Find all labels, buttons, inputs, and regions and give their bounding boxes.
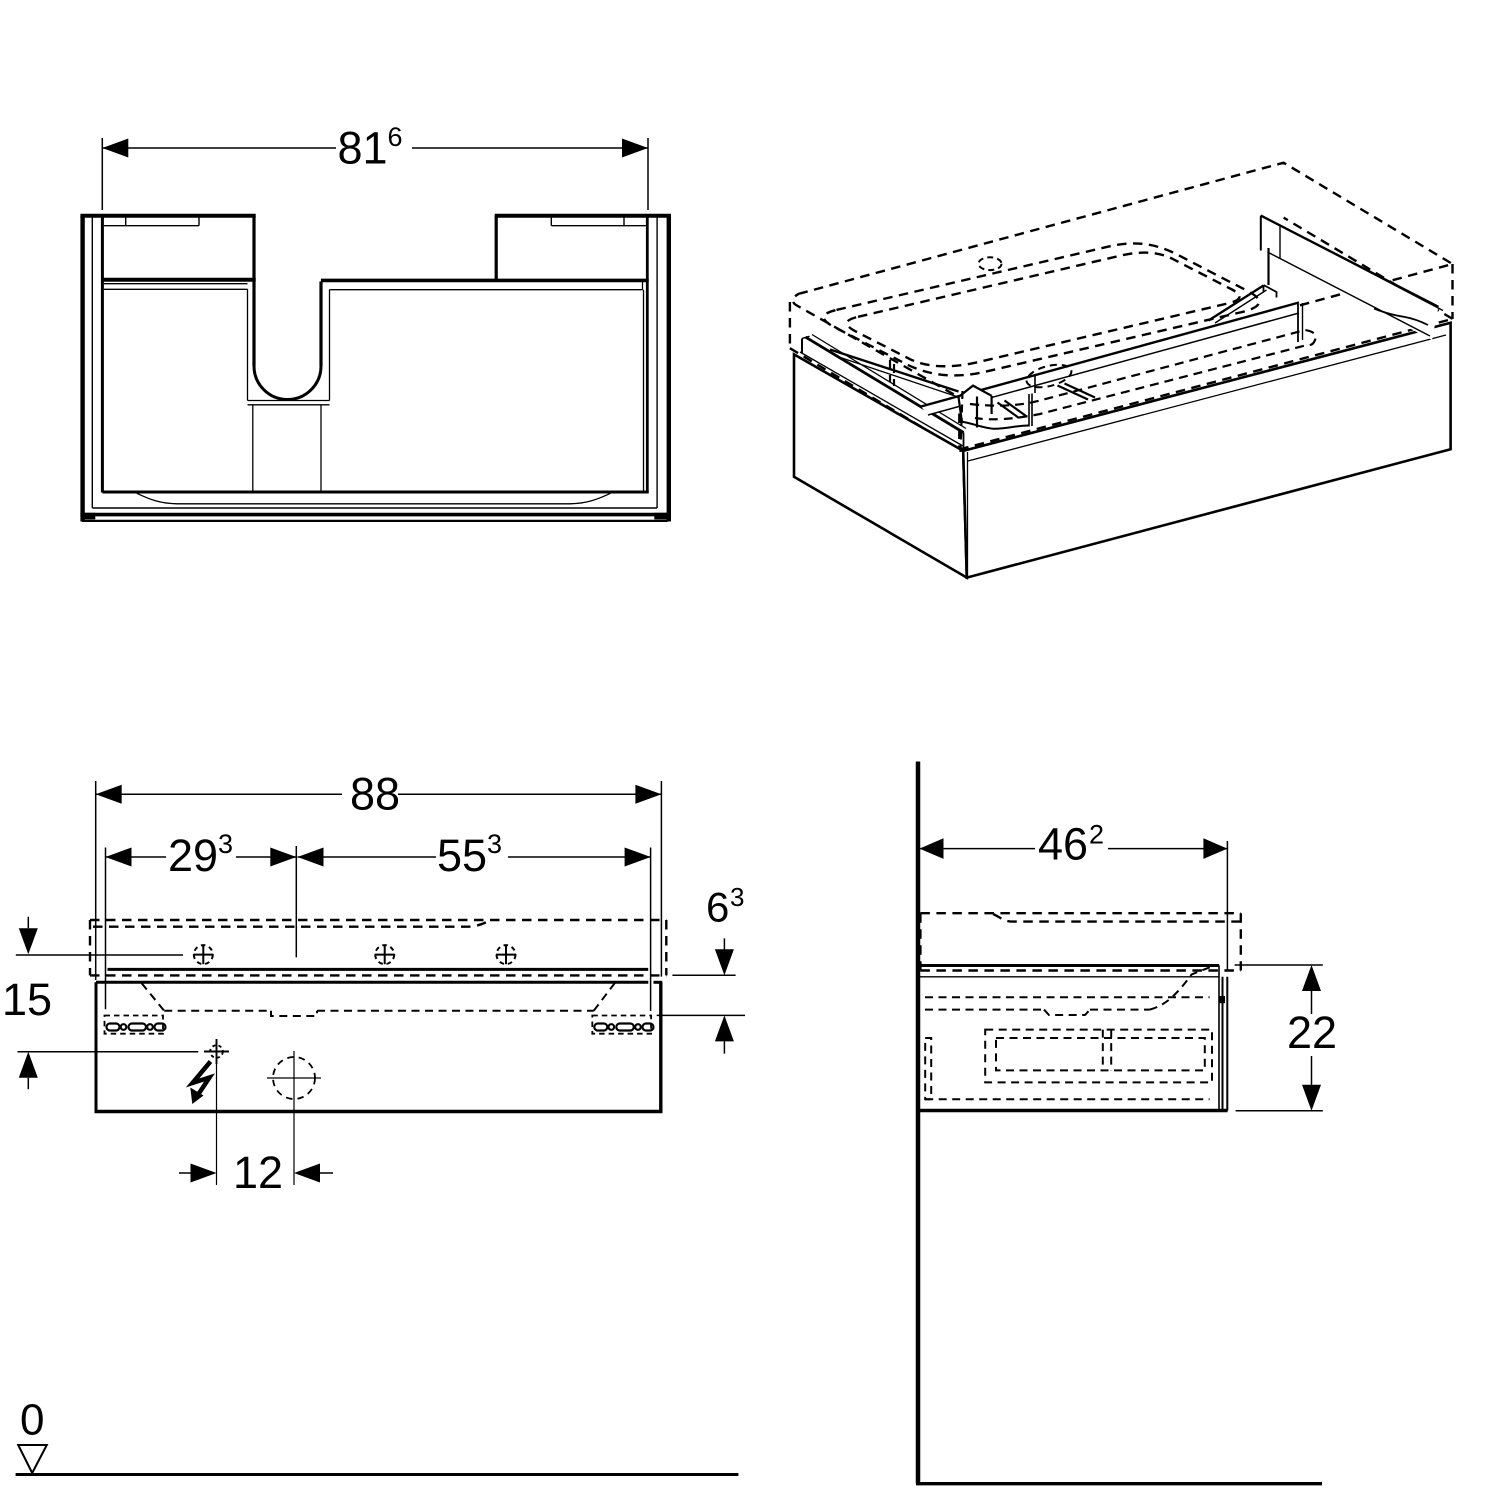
svg-text:12: 12 xyxy=(233,1147,283,1198)
svg-text:6: 6 xyxy=(388,122,403,152)
svg-text:6: 6 xyxy=(706,884,729,931)
svg-text:81: 81 xyxy=(338,123,388,174)
svg-text:15: 15 xyxy=(2,974,52,1025)
svg-text:22: 22 xyxy=(1287,1007,1337,1058)
svg-text:0: 0 xyxy=(20,1396,44,1445)
svg-text:55: 55 xyxy=(437,830,487,881)
svg-text:88: 88 xyxy=(350,769,400,820)
svg-text:46: 46 xyxy=(1038,819,1088,870)
svg-text:3: 3 xyxy=(218,829,233,859)
svg-text:3: 3 xyxy=(730,882,744,912)
svg-text:3: 3 xyxy=(487,829,502,859)
svg-text:2: 2 xyxy=(1089,820,1104,850)
svg-text:29: 29 xyxy=(168,830,218,881)
